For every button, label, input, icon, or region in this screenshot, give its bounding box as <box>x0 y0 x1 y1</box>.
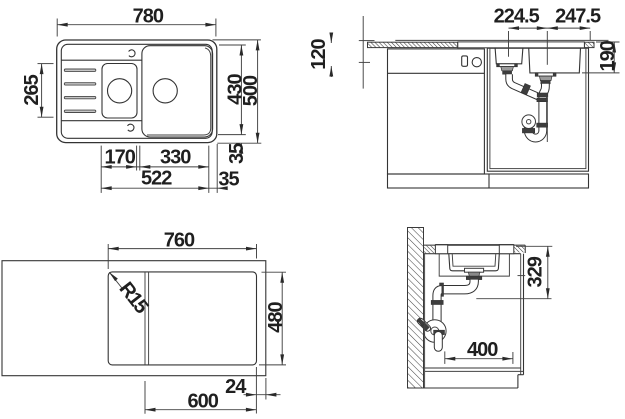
svg-text:224.5: 224.5 <box>494 6 540 28</box>
svg-text:500: 500 <box>240 75 262 106</box>
svg-text:760: 760 <box>164 229 195 251</box>
svg-text:400: 400 <box>467 339 498 361</box>
svg-text:522: 522 <box>141 168 172 190</box>
svg-text:190: 190 <box>597 40 619 71</box>
svg-text:170: 170 <box>105 146 136 168</box>
svg-text:120: 120 <box>308 38 330 69</box>
svg-text:265: 265 <box>21 74 43 105</box>
svg-text:480: 480 <box>265 301 287 332</box>
svg-text:35: 35 <box>218 169 239 191</box>
svg-text:24: 24 <box>225 376 247 398</box>
svg-text:329: 329 <box>525 256 547 287</box>
svg-text:330: 330 <box>160 146 191 168</box>
svg-text:600: 600 <box>188 391 219 413</box>
svg-text:35: 35 <box>226 143 248 164</box>
svg-text:247.5: 247.5 <box>555 6 601 28</box>
svg-text:780: 780 <box>133 6 164 28</box>
